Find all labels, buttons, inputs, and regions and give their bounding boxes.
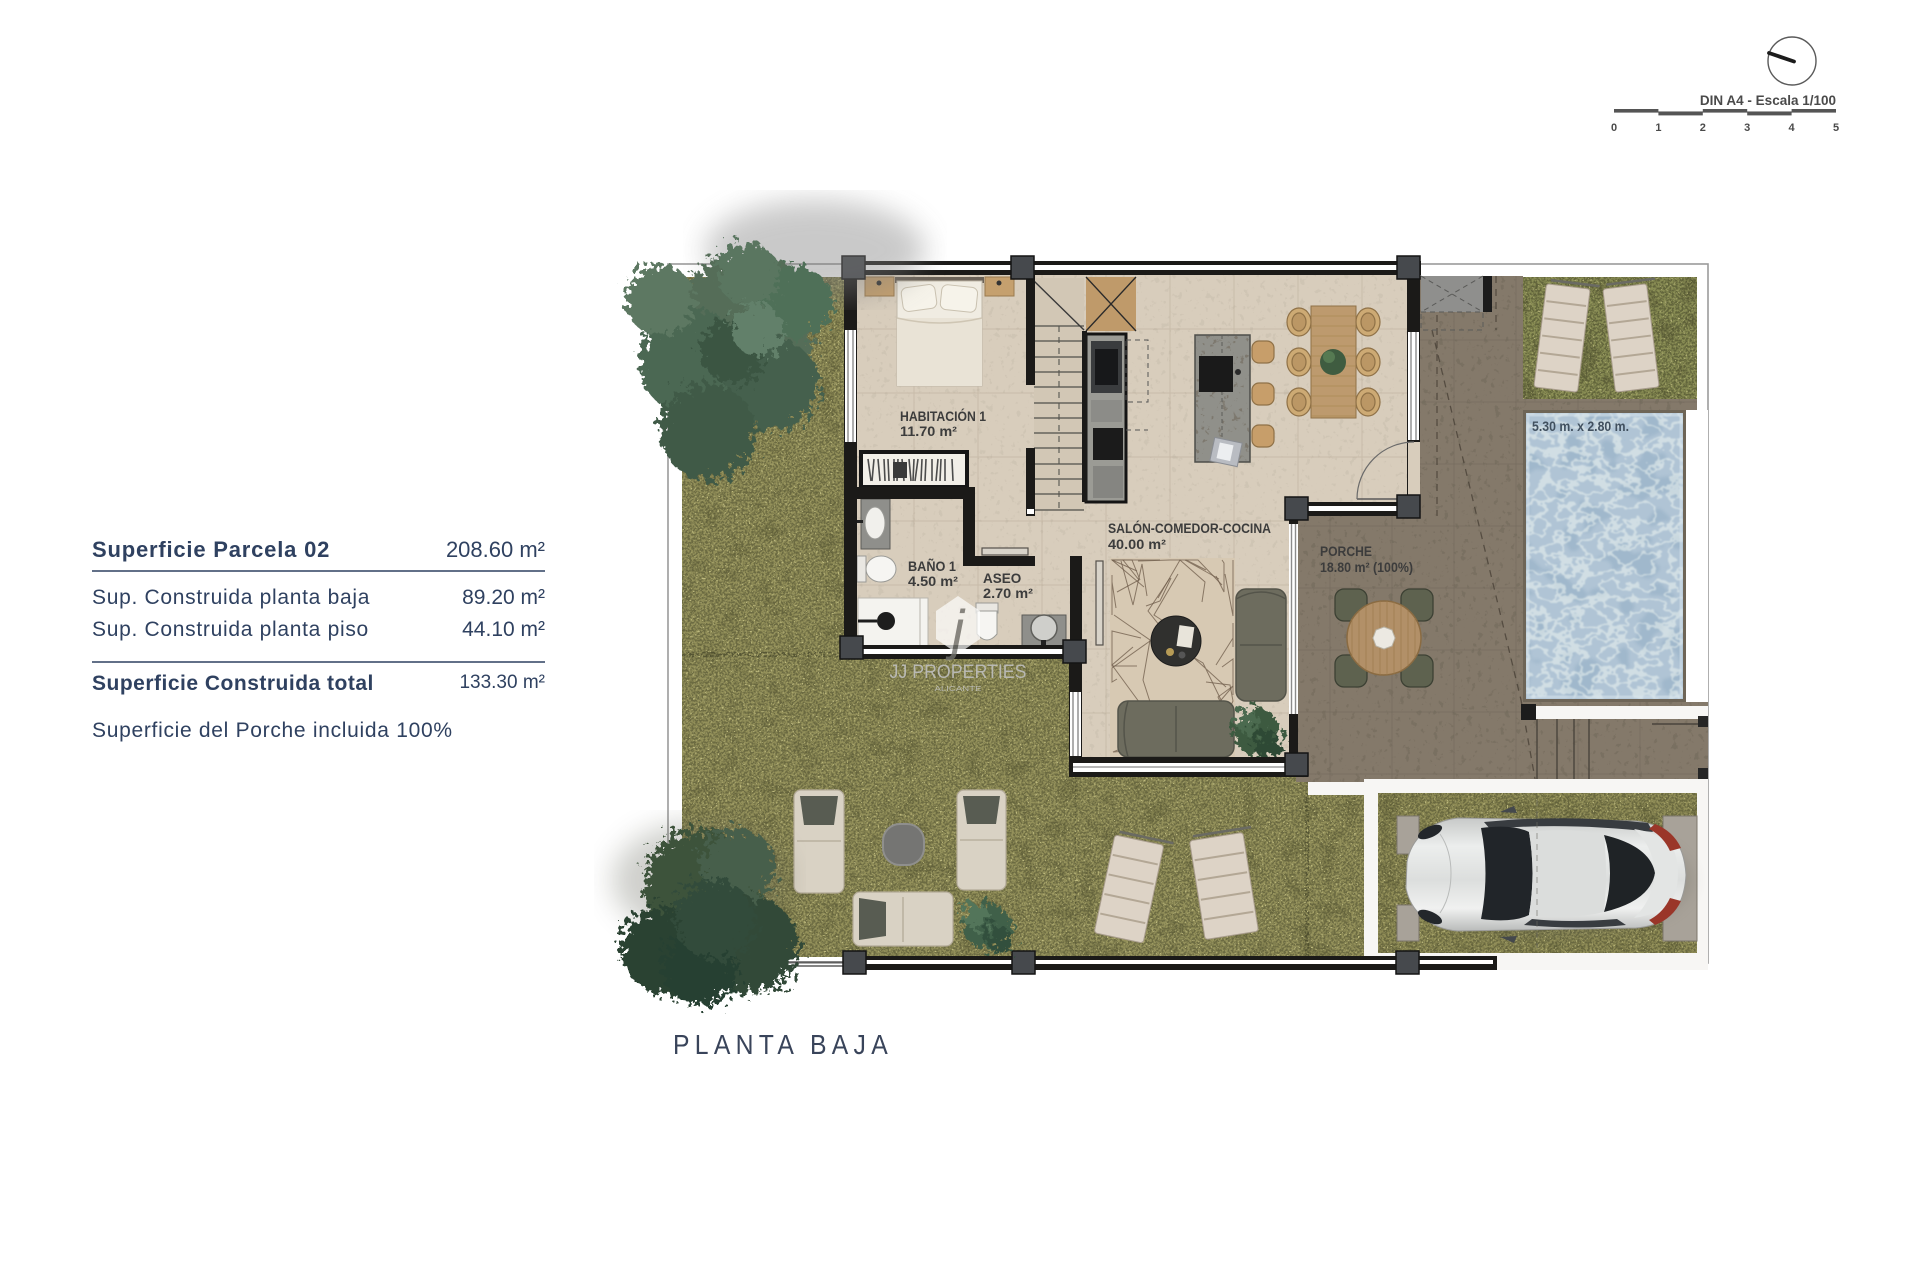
svg-text:40.00 m²: 40.00 m² [1108,537,1167,552]
svg-text:5.30 m. x 2.80 m.: 5.30 m. x 2.80 m. [1532,419,1629,434]
svg-text:PLANTA BAJA: PLANTA BAJA [673,1029,893,1060]
svg-text:2.70 m²: 2.70 m² [983,586,1034,601]
svg-text:4: 4 [1789,122,1796,134]
svg-text:3: 3 [1744,122,1750,134]
svg-text:89.20 m²: 89.20 m² [462,586,545,609]
svg-text:1: 1 [1655,122,1661,134]
svg-text:133.30 m²: 133.30 m² [459,672,545,693]
svg-text:11.70 m²: 11.70 m² [900,424,958,439]
svg-text:208.60 m²: 208.60 m² [446,537,545,562]
svg-text:HABITACIÓN 1: HABITACIÓN 1 [900,409,986,424]
svg-text:Superficie Parcela 02: Superficie Parcela 02 [92,537,330,562]
svg-text:0: 0 [1611,122,1617,134]
svg-text:Sup. Construida planta baja: Sup. Construida planta baja [92,586,370,609]
svg-text:2: 2 [1700,122,1706,134]
svg-text:DIN A4 - Escala 1/100: DIN A4 - Escala 1/100 [1700,93,1836,108]
svg-text:5: 5 [1833,122,1839,134]
svg-text:ASEO: ASEO [983,571,1021,586]
svg-text:JJ PROPERTIES: JJ PROPERTIES [890,662,1027,683]
svg-text:ALICANTE: ALICANTE [935,684,982,693]
svg-text:BAÑO 1: BAÑO 1 [908,559,956,574]
svg-text:SALÓN-COMEDOR-COCINA: SALÓN-COMEDOR-COCINA [1108,521,1271,536]
svg-text:18.80 m² (100%): 18.80 m² (100%) [1320,560,1413,575]
svg-text:PORCHE: PORCHE [1320,544,1372,559]
svg-text:Sup. Construida planta piso: Sup. Construida planta piso [92,618,369,641]
svg-text:Superficie del Porche incluida: Superficie del Porche incluida 100% [92,719,453,742]
svg-text:4.50 m²: 4.50 m² [908,574,959,589]
svg-text:Superficie Construida total: Superficie Construida total [92,672,374,695]
svg-text:44.10 m²: 44.10 m² [462,618,545,641]
